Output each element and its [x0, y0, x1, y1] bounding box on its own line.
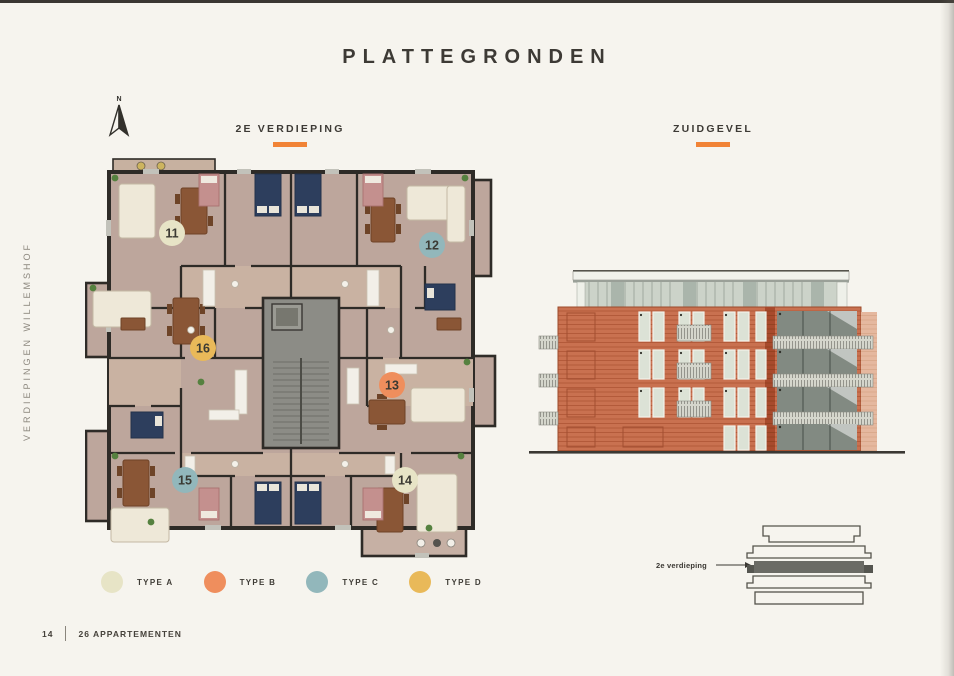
north-label: N: [104, 96, 134, 103]
page-number: 14: [42, 629, 53, 639]
north-arrow: N: [104, 96, 134, 142]
elevation-heading-text: ZUIDGEVEL: [593, 123, 833, 135]
stair-core: [263, 298, 339, 448]
unit-number-11: 11: [165, 227, 178, 241]
elevation-section-heading: ZUIDGEVEL: [593, 123, 833, 147]
unit-number-15: 15: [178, 474, 192, 488]
page-title: PLATTEGRONDEN: [0, 46, 954, 69]
accent-underline: [696, 142, 730, 147]
north-arrow-icon: [104, 103, 134, 139]
elevation-drawing: [527, 262, 907, 458]
legend-item-type-d: TYPE D: [408, 570, 482, 594]
type-a-swatch: [100, 570, 124, 594]
floor-1: [747, 576, 871, 588]
legend-item-type-b: TYPE B: [203, 570, 277, 594]
accent-underline: [273, 142, 307, 147]
side-label: VERDIEPINGEN WILLEMSHOF: [22, 213, 32, 469]
legend-label: TYPE C: [342, 578, 379, 587]
floor-2-highlighted: [747, 561, 873, 573]
type-legend: TYPE A TYPE B TYPE C TYPE D: [100, 570, 482, 594]
floor-3: [747, 546, 871, 558]
floor-ground: [755, 592, 863, 604]
floorplan-drawing: 11 12 13 14 15 16: [85, 158, 497, 568]
legend-label: TYPE A: [137, 578, 173, 587]
brochure-page: PLATTEGRONDEN N 2E VERDIEPING ZUIDGEVEL …: [0, 0, 954, 676]
type-b-swatch: [203, 570, 227, 594]
unit-number-12: 12: [425, 239, 439, 253]
type-c-swatch: [305, 570, 329, 594]
page-edge-shadow: [940, 0, 954, 676]
footer-divider: [65, 626, 66, 641]
legend-label: TYPE B: [240, 578, 277, 587]
type-d-swatch: [408, 570, 432, 594]
stack-label: 2e verdieping: [656, 561, 707, 570]
floor-roof: [763, 526, 860, 542]
floor-stack-diagram: 2e verdieping: [648, 512, 884, 612]
penthouse: [573, 270, 849, 307]
page-footer: 14 26 APPARTEMENTEN: [42, 626, 182, 641]
unit-number-14: 14: [398, 474, 412, 488]
stack-arrow-icon: [716, 562, 751, 568]
legend-item-type-a: TYPE A: [100, 570, 173, 594]
page-top-border: [0, 0, 954, 3]
ground-line: [529, 451, 905, 454]
floorplan-section-heading: 2E VERDIEPING: [170, 123, 410, 147]
unit-number-16: 16: [196, 342, 210, 356]
legend-item-type-c: TYPE C: [305, 570, 379, 594]
unit-number-13: 13: [385, 379, 399, 393]
project-name: 26 APPARTEMENTEN: [78, 629, 181, 639]
legend-label: TYPE D: [445, 578, 482, 587]
floorplan-heading-text: 2E VERDIEPING: [170, 123, 410, 135]
